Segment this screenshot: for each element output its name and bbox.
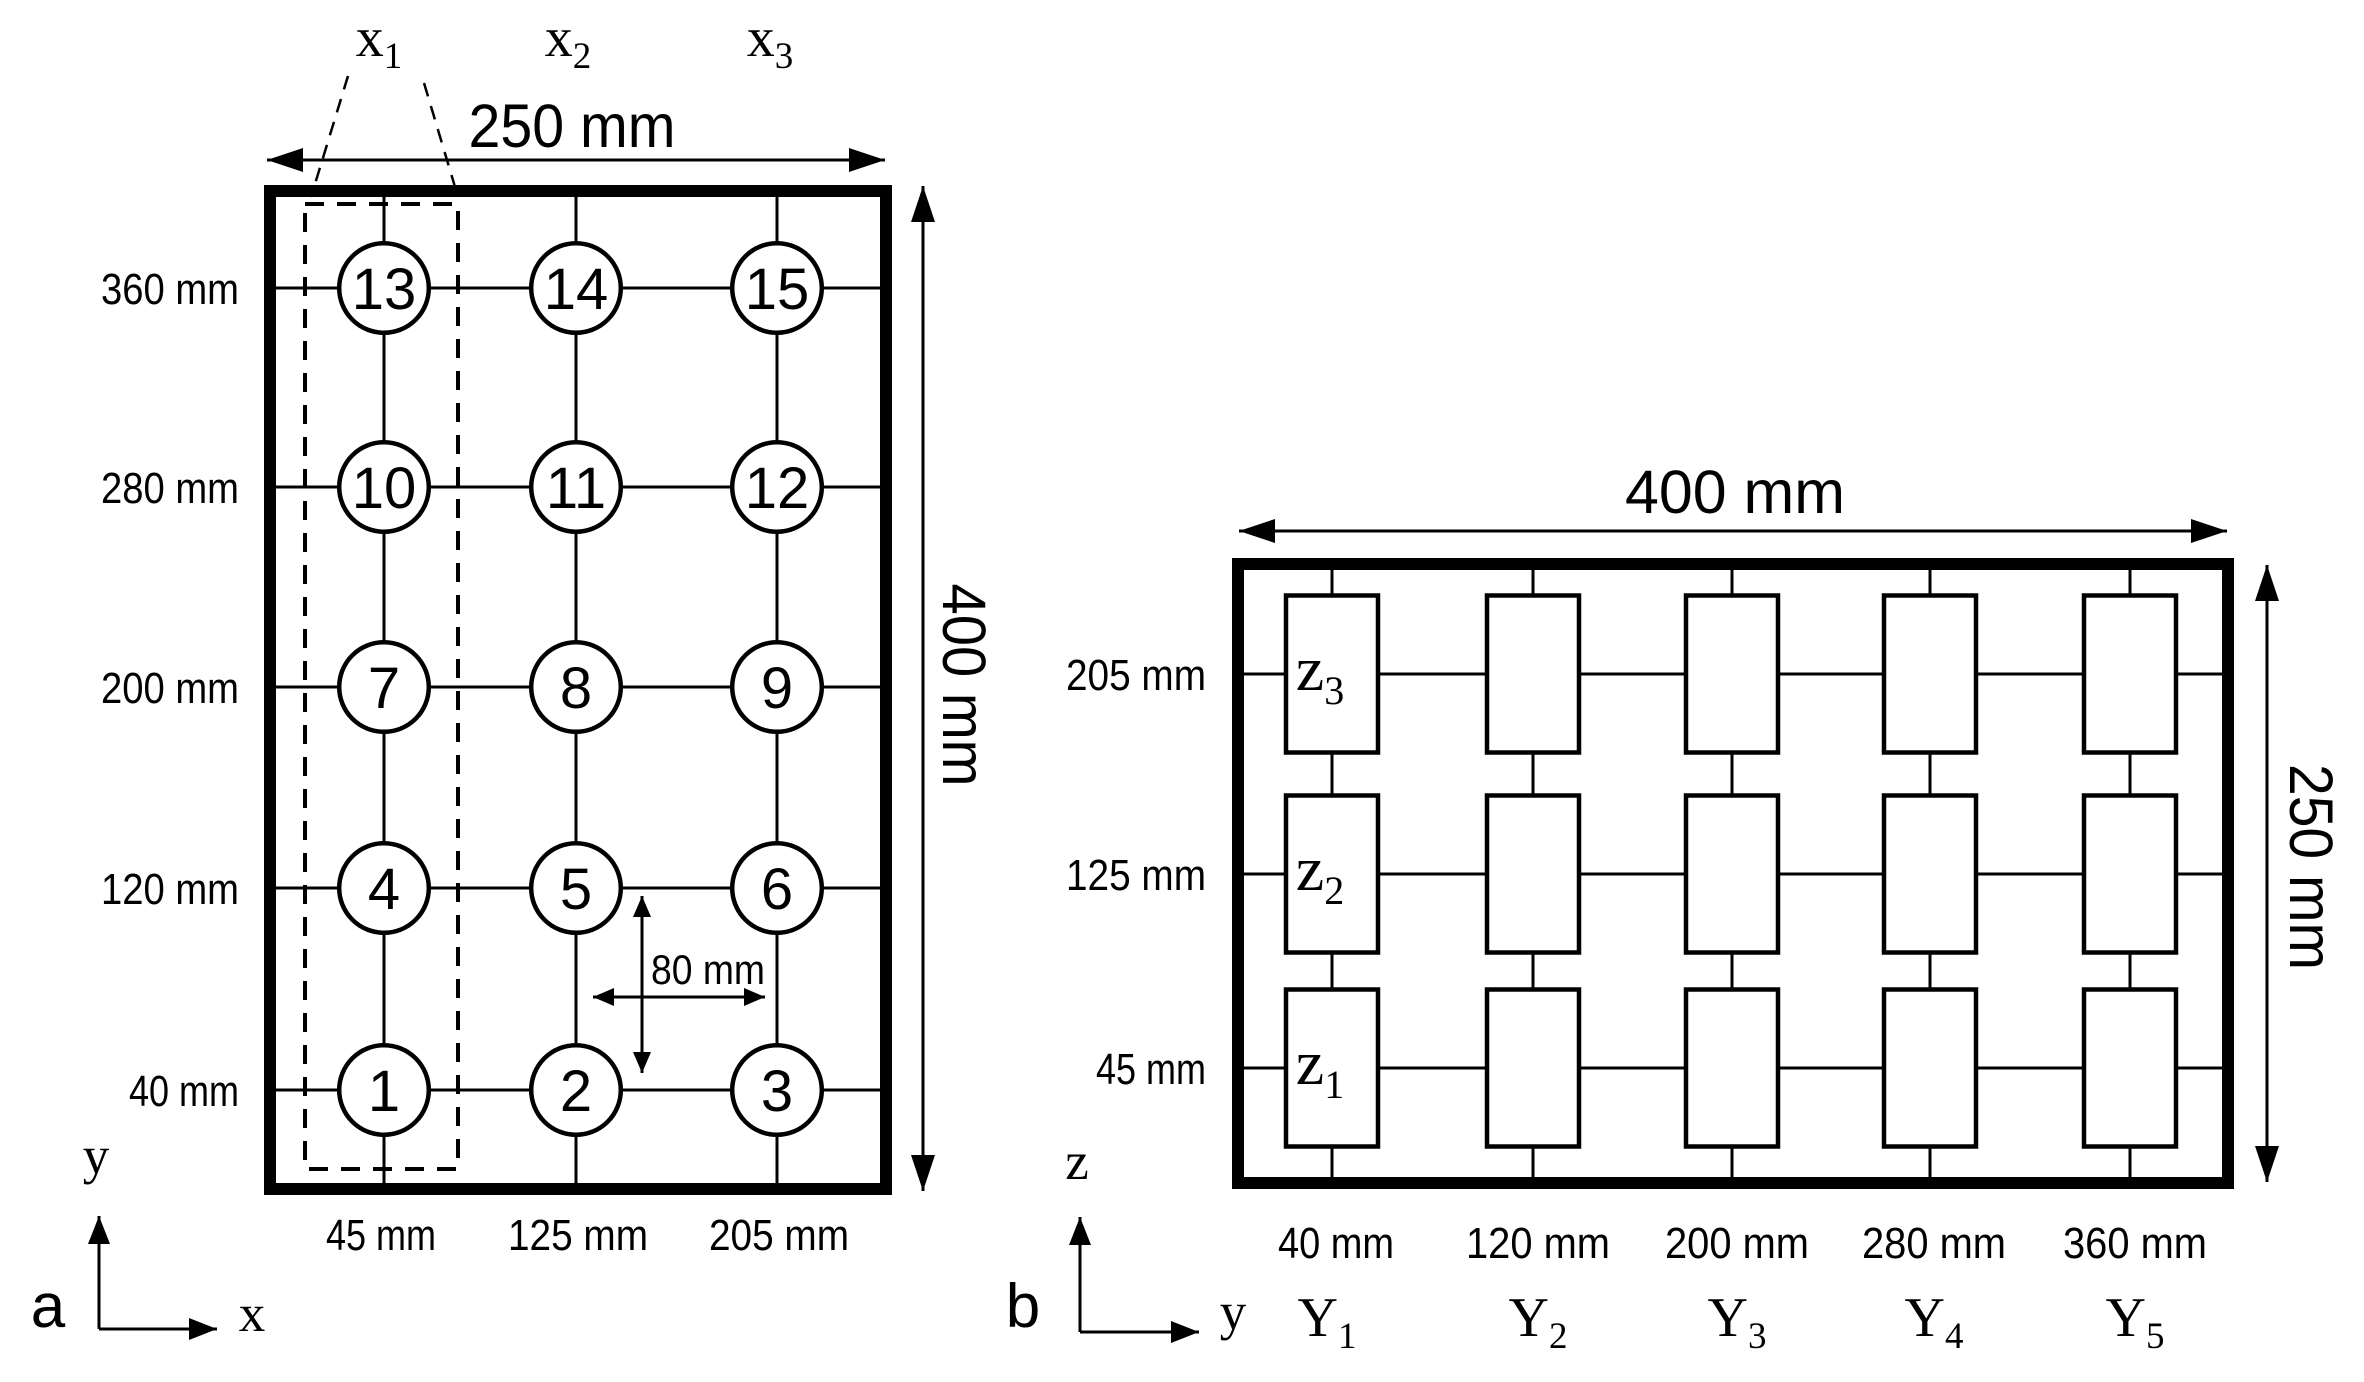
svg-text:125 mm: 125 mm	[1066, 851, 1206, 900]
svg-text:200 mm: 200 mm	[101, 664, 239, 713]
svg-text:200 mm: 200 mm	[1665, 1219, 1809, 1268]
svg-text:15: 15	[745, 257, 810, 322]
svg-text:80 mm: 80 mm	[651, 946, 765, 993]
svg-text:a: a	[31, 1272, 66, 1341]
svg-text:45 mm: 45 mm	[326, 1211, 436, 1260]
svg-text:45 mm: 45 mm	[1096, 1045, 1206, 1094]
svg-text:40 mm: 40 mm	[129, 1067, 239, 1116]
svg-text:8: 8	[560, 656, 592, 721]
svg-text:z: z	[1065, 1133, 1089, 1191]
svg-text:3: 3	[761, 1059, 793, 1124]
svg-text:360 mm: 360 mm	[2063, 1219, 2207, 1268]
svg-text:280 mm: 280 mm	[101, 464, 239, 513]
svg-text:12: 12	[745, 456, 810, 521]
svg-text:250 mm: 250 mm	[469, 92, 676, 160]
svg-text:2: 2	[560, 1059, 592, 1124]
svg-text:14: 14	[544, 257, 609, 322]
svg-text:205 mm: 205 mm	[709, 1211, 849, 1260]
svg-text:6: 6	[761, 857, 793, 922]
svg-text:125 mm: 125 mm	[508, 1211, 648, 1260]
svg-text:40 mm: 40 mm	[1278, 1219, 1394, 1268]
svg-text:120 mm: 120 mm	[1466, 1219, 1610, 1268]
svg-text:x: x	[239, 1285, 266, 1343]
svg-text:400 mm: 400 mm	[1625, 458, 1845, 526]
svg-text:250 mm: 250 mm	[2277, 764, 2345, 970]
svg-text:205 mm: 205 mm	[1066, 651, 1206, 700]
svg-text:9: 9	[761, 656, 793, 721]
svg-text:400 mm: 400 mm	[930, 584, 998, 787]
svg-text:280 mm: 280 mm	[1862, 1219, 2006, 1268]
svg-text:360 mm: 360 mm	[101, 265, 239, 314]
svg-text:y: y	[83, 1127, 110, 1185]
svg-text:4: 4	[368, 857, 400, 922]
svg-text:13: 13	[352, 257, 417, 322]
svg-text:b: b	[1006, 1272, 1040, 1341]
svg-text:y: y	[1220, 1283, 1247, 1341]
svg-text:7: 7	[368, 656, 400, 721]
svg-text:10: 10	[352, 456, 417, 521]
svg-text:1: 1	[368, 1059, 400, 1124]
svg-text:120 mm: 120 mm	[101, 865, 239, 914]
svg-text:5: 5	[560, 857, 592, 922]
svg-text:11: 11	[546, 456, 606, 521]
